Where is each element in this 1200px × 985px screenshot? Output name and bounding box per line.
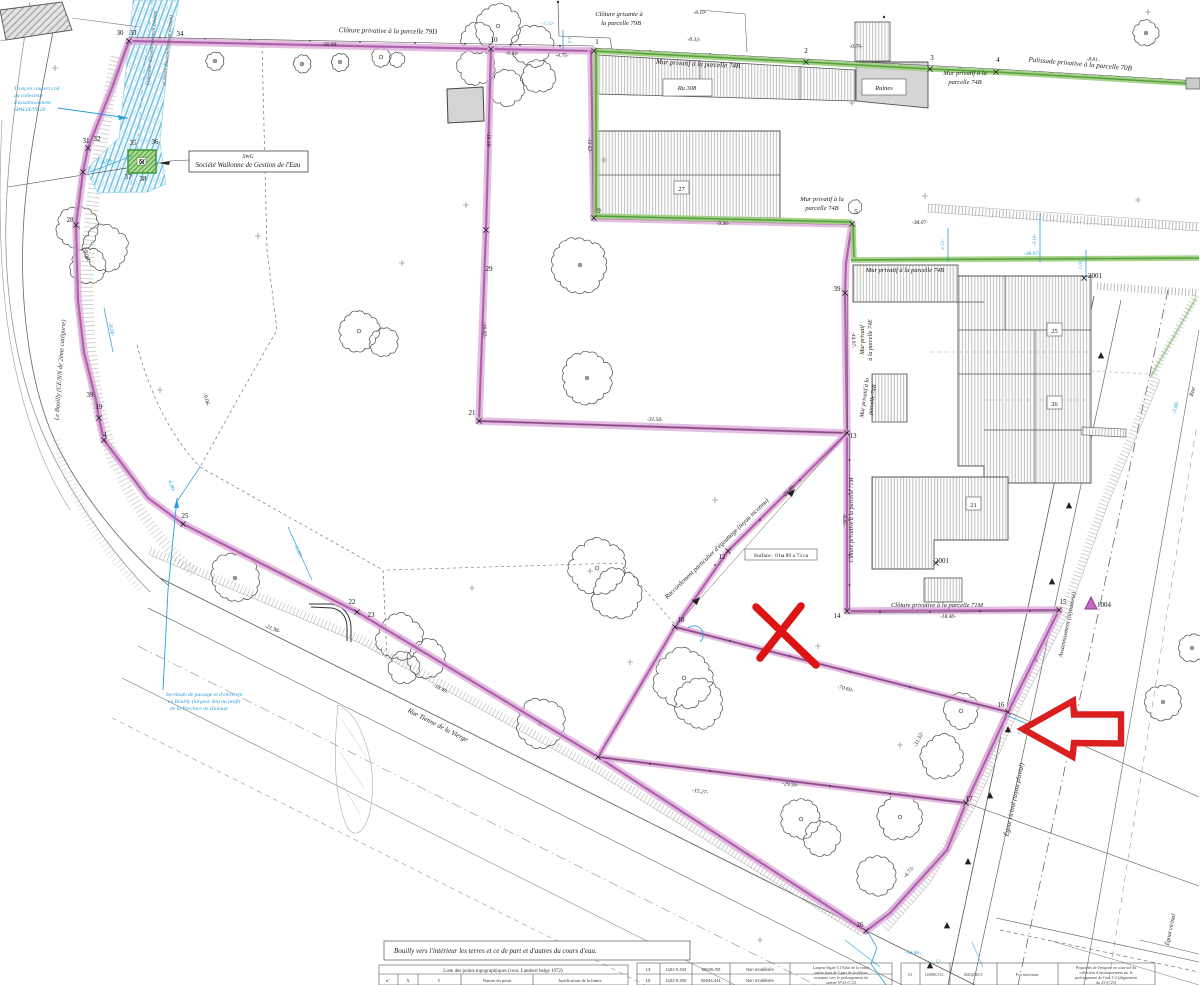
svg-text:26: 26	[1051, 401, 1058, 408]
svg-text:1.03: 1.03	[1079, 260, 1084, 269]
svg-text:22: 22	[349, 598, 357, 606]
svg-text:Non modélisée: Non modélisée	[746, 967, 775, 972]
svg-text:32: 32	[94, 135, 102, 143]
svg-text:26: 26	[857, 921, 865, 929]
svg-text:9: 9	[597, 207, 601, 215]
svg-text:Servitude de passage et d'entr: Servitude de passage et d'entretien	[166, 692, 243, 698]
svg-text:-38.07-: -38.07-	[1024, 251, 1040, 257]
svg-text:36: 36	[152, 138, 160, 146]
svg-text:-30.89-: -30.89-	[322, 42, 338, 48]
svg-text:en Bouilly (largeur 4m) au pro: en Bouilly (largeur 4m) au profit	[168, 698, 241, 705]
svg-text:21: 21	[469, 409, 477, 417]
svg-text:16: 16	[998, 701, 1006, 709]
svg-text:1163 0.434: 1163 0.434	[666, 967, 687, 972]
svg-text:Ru 308: Ru 308	[677, 85, 697, 92]
svg-text:-0.79-: -0.79-	[849, 44, 863, 50]
svg-text:23: 23	[368, 611, 376, 619]
svg-text:Nature du point: Nature du point	[483, 978, 512, 983]
svg-text:de la Province de Hainaut: de la Province de Hainaut	[170, 706, 228, 712]
svg-text:-18.40-: -18.40-	[940, 613, 956, 620]
svg-text:-4.50-: -4.50-	[541, 20, 554, 27]
svg-text:Clôture privative à la parcell: Clôture privative à la parcelle 71M	[849, 476, 855, 562]
svg-text:parcelle 74B: parcelle 74B	[947, 79, 981, 86]
svg-text:4: 4	[103, 431, 107, 439]
svg-text:2001: 2001	[1088, 272, 1103, 280]
svg-text:18: 18	[678, 616, 686, 624]
svg-text:-3.10-: -3.10-	[1033, 234, 1038, 246]
svg-text:parcelle 74B: parcelle 74B	[804, 205, 838, 212]
svg-text:-4.75-: -4.75-	[555, 52, 569, 59]
svg-text:27: 27	[678, 186, 685, 193]
svg-text:13: 13	[646, 967, 651, 972]
svg-text:-8.81-: -8.81-	[1086, 56, 1100, 63]
svg-text:-9.44-: -9.44-	[505, 50, 519, 57]
svg-text:-16.62-: -16.62-	[586, 137, 592, 153]
svg-text:Pcn incertaine: Pcn incertaine	[1016, 972, 1039, 977]
svg-text:1.5: 1.5	[566, 37, 571, 44]
svg-text:2001: 2001	[935, 557, 950, 565]
svg-text:d'assainissement: d'assainissement	[14, 100, 51, 106]
svg-text:Mur privatif à la: Mur privatif à la	[942, 70, 987, 77]
svg-text:Justification de la limite: Justification de la limite	[558, 978, 601, 983]
svg-text:Bouilly vers l'intérieur les t: Bouilly vers l'intérieur les terres et c…	[394, 947, 597, 955]
svg-text:Tronçon couvert.coll: Tronçon couvert.coll	[14, 86, 60, 92]
svg-text:à la parcelle 74E: à la parcelle 74E	[867, 319, 874, 361]
svg-text:39: 39	[834, 285, 842, 293]
svg-text:2: 2	[804, 47, 808, 55]
svg-text:-10.46-: -10.46-	[905, 949, 922, 957]
svg-text:17: 17	[966, 795, 974, 803]
svg-text:12: 12	[719, 553, 727, 561]
svg-text:du 23+C'23): du 23+C'23)	[1096, 980, 1117, 985]
svg-text:38452845.5: 38452845.5	[964, 972, 983, 977]
svg-text:1163 9.200: 1163 9.200	[666, 978, 687, 983]
svg-text:Surface : 0 ha 89 a 73 ca: Surface : 0 ha 89 a 73 ca	[754, 552, 809, 559]
svg-text:Mur privatif à la parcelle 74B: Mur privatif à la parcelle 74B	[865, 267, 944, 274]
svg-text:3: 3	[930, 54, 934, 62]
svg-text:53: 53	[908, 972, 912, 977]
svg-text:la parcelle 79B: la parcelle 79B	[601, 20, 641, 27]
svg-text:sentier N°23+C'23: sentier N°23+C'23	[826, 980, 856, 985]
svg-text:25: 25	[1051, 328, 1058, 335]
svg-text:15: 15	[1060, 598, 1068, 606]
svg-text:14: 14	[834, 612, 842, 620]
svg-text:1004: 1004	[1097, 601, 1112, 609]
svg-text:n°: n°	[386, 978, 390, 983]
svg-text:19: 19	[96, 403, 104, 411]
svg-text:SPALIX/VP.20: SPALIX/VP.20	[14, 107, 46, 113]
svg-text:13: 13	[850, 432, 858, 440]
svg-text:55046.441: 55046.441	[701, 978, 721, 983]
svg-text:55040./00: 55040./00	[702, 967, 721, 972]
svg-text:Clôture grisante à: Clôture grisante à	[595, 11, 642, 18]
svg-text:Société Wallonne de Gestion de: Société Wallonne de Gestion de l'Eau	[196, 161, 301, 169]
svg-text:29: 29	[486, 265, 494, 273]
svg-text:28: 28	[67, 216, 75, 224]
svg-text:31: 31	[83, 137, 91, 145]
svg-text:21: 21	[970, 502, 977, 509]
svg-text:33: 33	[130, 29, 138, 37]
svg-text:du collecteur: du collecteur	[14, 93, 44, 99]
svg-text:Liste des points topographique: Liste des points topographiques (coor. L…	[443, 969, 563, 974]
svg-text:SWG: SWG	[242, 154, 253, 160]
svg-text:-18.18-: -18.18-	[485, 132, 491, 148]
svg-text:37: 37	[125, 173, 133, 181]
svg-text:25: 25	[182, 512, 190, 520]
svg-text:5: 5	[854, 208, 858, 216]
svg-text:Ruines: Ruines	[874, 85, 893, 92]
svg-text:116886.512: 116886.512	[925, 972, 944, 977]
svg-text:-8.10-: -8.10-	[693, 10, 706, 16]
svg-text:Clôture privative à la parcell: Clôture privative à la parcelle 71M	[891, 602, 984, 609]
svg-text:19: 19	[646, 978, 651, 983]
svg-text:-8.85-: -8.85-	[841, 513, 847, 526]
svg-text:-1.51-: -1.51-	[941, 239, 946, 251]
svg-text:10: 10	[491, 36, 499, 44]
svg-text:4: 4	[996, 56, 1000, 64]
svg-text:12: 12	[936, 960, 942, 965]
svg-text:34: 34	[177, 30, 185, 38]
svg-text:38: 38	[140, 175, 148, 183]
svg-text:1: 1	[595, 38, 599, 46]
svg-text:39: 39	[87, 391, 95, 399]
svg-text:-31.50-: -31.50-	[647, 417, 663, 424]
svg-text:-16.02-: -16.02-	[481, 322, 488, 338]
svg-text:-9.36-: -9.36-	[716, 221, 730, 227]
svg-text:Mur privatif à la: Mur privatif à la	[799, 196, 844, 203]
svg-text:-38.07-: -38.07-	[912, 220, 928, 226]
svg-text:-44.97-: -44.97-	[850, 332, 857, 348]
svg-text:35: 35	[130, 139, 138, 147]
svg-text:Non modélisée: Non modélisée	[746, 978, 775, 983]
svg-text:Mur privatif: Mur privatif	[859, 324, 866, 356]
svg-text:30: 30	[117, 29, 125, 37]
svg-text:-8.33-: -8.33-	[687, 37, 701, 44]
